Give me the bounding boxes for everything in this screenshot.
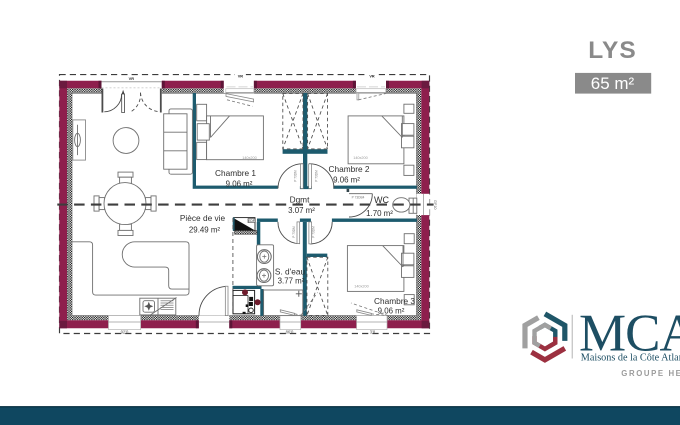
svg-text:EDF: EDF	[248, 219, 254, 223]
svg-text:140x200: 140x200	[354, 285, 369, 289]
svg-text:1.70 m²: 1.70 m²	[366, 209, 393, 218]
svg-text:GF10: GF10	[433, 200, 437, 210]
svg-text:P 73DM: P 73DM	[315, 170, 319, 182]
svg-text:P 73DM: P 73DM	[311, 226, 315, 238]
svg-text:Pièce de vie: Pièce de vie	[180, 213, 226, 223]
svg-text:3'8: 3'8	[370, 329, 376, 334]
svg-text:Chambre 2: Chambre 2	[328, 164, 369, 174]
svg-text:9.06 m²: 9.06 m²	[333, 176, 360, 185]
svg-text:P 73DB4: P 73DB4	[352, 195, 365, 199]
svg-text:140x200: 140x200	[353, 156, 368, 160]
svg-text:VR: VR	[129, 77, 135, 81]
svg-text:P 73DM: P 73DM	[294, 170, 298, 182]
svg-text:Maisons de la Côte Atlantique: Maisons de la Côte Atlantique	[581, 352, 680, 363]
svg-text:Dgmt: Dgmt	[290, 194, 311, 204]
svg-text:Chambre 3: Chambre 3	[374, 296, 415, 306]
svg-text:29.49 m²: 29.49 m²	[189, 225, 221, 234]
svg-text:65 m²: 65 m²	[591, 74, 635, 93]
svg-text:LYS: LYS	[588, 37, 636, 64]
svg-text:140x200: 140x200	[242, 156, 257, 160]
svg-text:3.77 m²: 3.77 m²	[278, 276, 305, 285]
svg-text:92'0: 92'0	[121, 329, 129, 334]
svg-text:86'0: 86'0	[286, 329, 294, 334]
svg-text:9.06 m²: 9.06 m²	[378, 307, 405, 316]
svg-text:3.07 m²: 3.07 m²	[288, 206, 315, 215]
svg-text:GROUPE HEXAŌM: GROUPE HEXAŌM	[621, 369, 680, 378]
svg-text:VR: VR	[369, 75, 375, 79]
svg-text:WC: WC	[374, 195, 389, 205]
svg-text:9.06 m²: 9.06 m²	[226, 179, 253, 188]
svg-text:S. d'eau: S. d'eau	[275, 266, 306, 276]
svg-text:Chambre 1: Chambre 1	[215, 168, 256, 178]
svg-text:P 73DM: P 73DM	[292, 226, 296, 238]
svg-text:VR: VR	[238, 75, 244, 79]
